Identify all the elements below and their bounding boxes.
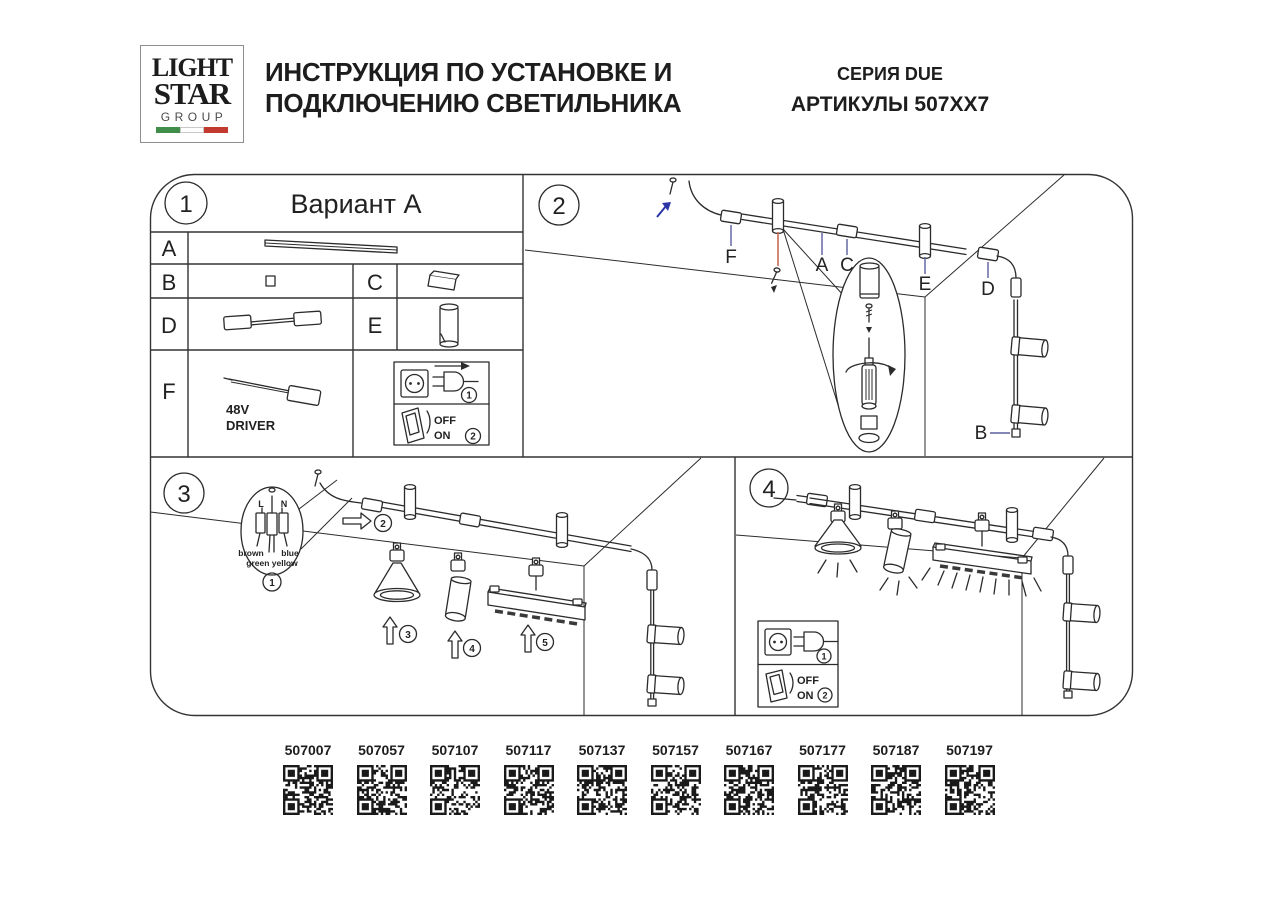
- panel-4-finished-scene: 4: [736, 458, 1104, 715]
- label-d: D: [981, 279, 995, 300]
- power-step-1: 1: [821, 652, 826, 662]
- article-number: 507057: [357, 742, 407, 758]
- part-letter-d: D: [161, 313, 177, 338]
- qr-item: 507187: [871, 742, 921, 815]
- mid-connector: [836, 224, 857, 238]
- socket-icon: [765, 629, 791, 655]
- standoff-post: [773, 199, 784, 234]
- qr-item: 507107: [430, 742, 480, 815]
- wall-spotlight: [1063, 603, 1101, 624]
- base-disk: [859, 434, 879, 443]
- part-letter-f: F: [162, 379, 175, 404]
- qr-item: 507007: [283, 742, 333, 815]
- power-step-2: 2: [470, 432, 476, 443]
- article-number: 507197: [945, 742, 995, 758]
- supply-cable: [689, 181, 721, 215]
- wire-l-label: L: [258, 499, 264, 509]
- article-number: 507187: [871, 742, 921, 758]
- wall-track: [1051, 537, 1101, 698]
- power-steps-box: 1 OFF ON 2: [394, 362, 489, 445]
- variant-title: Вариант A: [291, 189, 422, 219]
- label-e: E: [919, 274, 932, 295]
- qr-item: 507157: [651, 742, 701, 815]
- article-number: 507007: [283, 742, 333, 758]
- qr-code: [430, 765, 480, 815]
- panel-3-number: 3: [177, 481, 190, 508]
- wall-spotlight: [647, 675, 685, 696]
- standoff-icon: [440, 304, 458, 347]
- wall-connector-d: [977, 247, 998, 261]
- step-4-arrow: [448, 631, 462, 658]
- switch-off-label: OFF: [797, 675, 819, 687]
- light-rays: [880, 577, 917, 595]
- surface-mount-icon: [428, 271, 459, 290]
- mid-connector: [459, 513, 481, 527]
- wall-spotlight: [647, 625, 685, 646]
- cylinder-spotlight-icon: [445, 553, 472, 622]
- article-number: 507137: [577, 742, 627, 758]
- step-2: 2: [380, 519, 386, 530]
- switch-off-label: OFF: [434, 415, 456, 427]
- articles-title: АРТИКУЛЫ 507XX7: [755, 93, 1025, 117]
- screw-icon: [670, 178, 676, 194]
- panel-3-wiring-scene: 3 L N: [151, 458, 702, 715]
- track-rail-icon: [265, 240, 397, 253]
- standoff-post: [405, 485, 416, 520]
- panel-2-number: 2: [552, 193, 565, 220]
- qr-item: 507167: [724, 742, 774, 815]
- step-3: 3: [405, 630, 411, 641]
- qr-code: [871, 765, 921, 815]
- page-title-line1: ИНСТРУКЦИЯ ПО УСТАНОВКЕ И: [265, 57, 681, 88]
- linear-light-icon: [488, 558, 586, 624]
- article-number: 507117: [504, 742, 554, 758]
- driver-connector: [720, 210, 741, 224]
- main-diagram: 1 Вариант A A B C D E F: [148, 172, 1135, 718]
- end-cap-icon: [266, 276, 275, 286]
- part-letter-a: A: [162, 236, 177, 261]
- qr-code-row: 507007 507057 507107 507117 507137 50715…: [283, 742, 995, 815]
- part-letter-c: C: [367, 270, 383, 295]
- page-title: ИНСТРУКЦИЯ ПО УСТАНОВКЕ И ПОДКЛЮЧЕНИЮ СВ…: [265, 57, 681, 119]
- driver-voltage: 48V: [226, 402, 249, 417]
- mid-connector: [914, 509, 935, 523]
- article-number: 507107: [430, 742, 480, 758]
- driver-connector: [361, 498, 383, 512]
- qr-code: [283, 765, 333, 815]
- supply-cable: [320, 483, 361, 503]
- qr-code: [504, 765, 554, 815]
- instruction-sheet: LIGHT STAR GROUP ИНСТРУКЦИЯ ПО УСТАНОВКЕ…: [0, 0, 1280, 905]
- wire-green-yellow-label: green yellow: [246, 558, 298, 568]
- label-f: F: [725, 247, 737, 268]
- mid-connector: [1032, 527, 1053, 541]
- direction-arrow-blue: [657, 202, 671, 217]
- standoff-post: [557, 513, 568, 548]
- step-5: 5: [542, 638, 548, 649]
- linear-light-icon: [922, 513, 1041, 596]
- qr-item: 507197: [945, 742, 995, 815]
- article-number: 507177: [798, 742, 848, 758]
- panel-4-number: 4: [762, 476, 775, 503]
- panel-1-number: 1: [179, 191, 192, 218]
- wire-n-label: N: [281, 499, 288, 509]
- wall-track: [631, 549, 685, 706]
- part-letter-e: E: [368, 313, 383, 338]
- wire-brown-label: brown: [238, 548, 264, 558]
- wall-spotlight: [1063, 671, 1101, 692]
- lightstar-logo: LIGHT STAR GROUP: [140, 45, 244, 143]
- ceiling-screw: [772, 268, 781, 285]
- step-5-arrow: [521, 625, 535, 652]
- page-title-line2: ПОДКЛЮЧЕНИЮ СВЕТИЛЬНИКА: [265, 88, 681, 119]
- light-rays: [818, 560, 857, 577]
- italian-flag-stripe: [156, 127, 228, 133]
- standoff-post: [1007, 508, 1018, 543]
- step-4: 4: [469, 644, 475, 655]
- wire-blue-label: blue: [281, 548, 299, 558]
- cylinder-spotlight-icon: [880, 511, 917, 595]
- socket-icon: [401, 370, 428, 397]
- qr-item: 507057: [357, 742, 407, 815]
- step-3-arrow: [383, 617, 397, 644]
- wall-spotlight: [1011, 337, 1049, 358]
- qr-item: 507117: [504, 742, 554, 815]
- room-perspective: [525, 175, 1064, 456]
- cone-spotlight-icon: [374, 543, 420, 602]
- ceiling-track: [382, 502, 631, 552]
- driver-label: DRIVER: [226, 418, 276, 433]
- qr-item: 507177: [798, 742, 848, 815]
- bracket-piece: [861, 416, 877, 429]
- qr-code: [798, 765, 848, 815]
- flex-connector-icon: [224, 311, 322, 330]
- end-cap-b: [1012, 429, 1020, 437]
- qr-code: [577, 765, 627, 815]
- series-title: СЕРИЯ DUE: [770, 64, 1010, 85]
- qr-code: [945, 765, 995, 815]
- logo-star-text: STAR: [141, 80, 243, 108]
- qr-code: [651, 765, 701, 815]
- qr-code: [724, 765, 774, 815]
- standoff-post-e: [920, 224, 931, 259]
- power-steps-box: 1 OFF ON 2: [758, 621, 838, 707]
- label-b: B: [975, 423, 988, 444]
- power-step-1: 1: [466, 391, 472, 402]
- wall-spotlight: [1011, 405, 1049, 426]
- switch-on-label: ON: [434, 430, 451, 442]
- power-step-2: 2: [822, 691, 827, 701]
- article-number: 507167: [724, 742, 774, 758]
- room-perspective: [151, 458, 702, 715]
- qr-item: 507137: [577, 742, 627, 815]
- logo-group-text: GROUP: [145, 110, 243, 124]
- label-a: A: [816, 255, 829, 276]
- switch-on-label: ON: [797, 690, 814, 702]
- step-2-arrow: 2: [343, 513, 392, 532]
- qr-code: [357, 765, 407, 815]
- part-letter-b: B: [162, 270, 177, 295]
- article-number: 507157: [651, 742, 701, 758]
- panel-1-parts-table: 1 Вариант A A B C D E F: [151, 182, 524, 457]
- panel-2-mounting-scene: 2 F A: [525, 175, 1064, 456]
- step-1: 1: [269, 578, 275, 589]
- standoff-post: [850, 485, 861, 520]
